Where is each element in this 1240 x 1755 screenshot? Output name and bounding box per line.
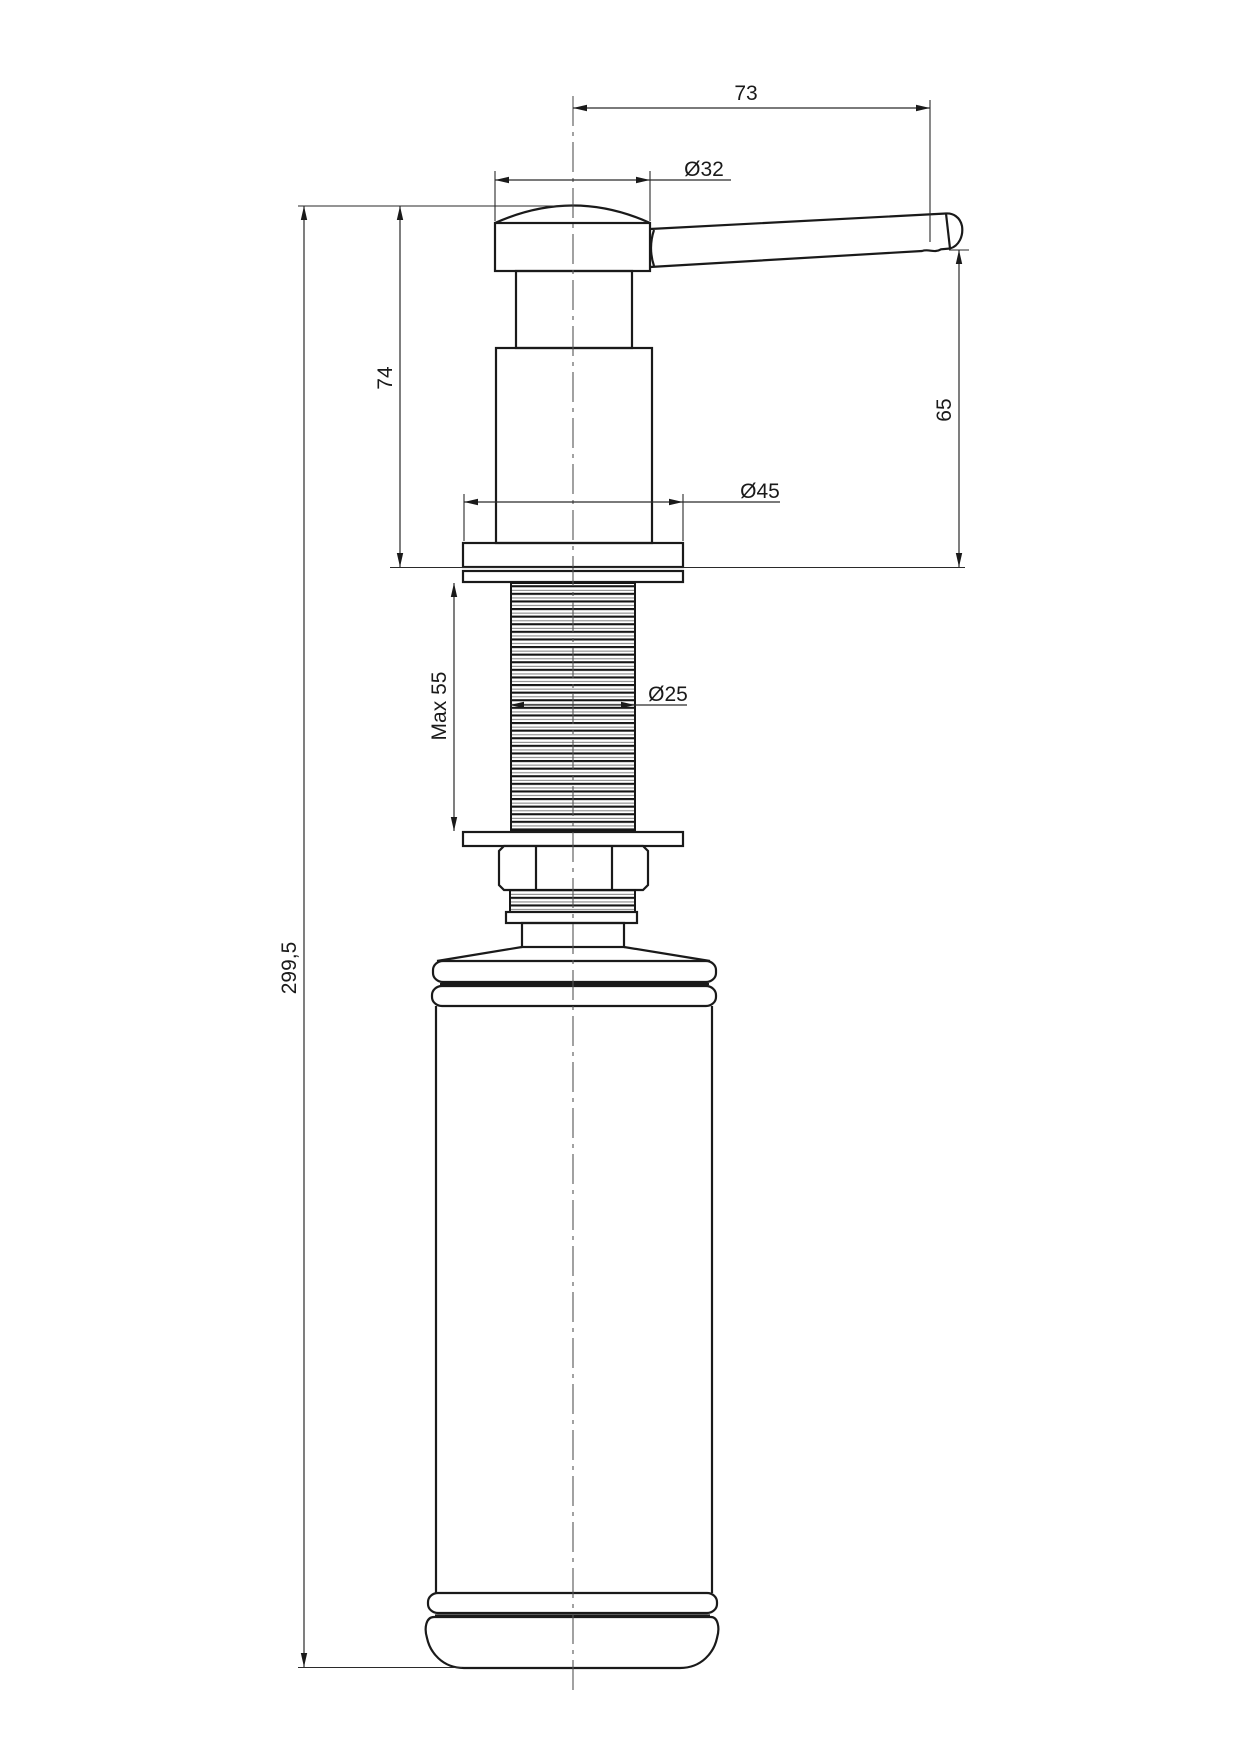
bottle-shoulder-left xyxy=(437,947,522,961)
dimension-max-counter-thickness: Max 55 xyxy=(428,583,457,831)
dim-label-max-counter-thickness: Max 55 xyxy=(428,672,451,741)
bottle-shoulder-right xyxy=(624,947,710,961)
bottle-top-bead-1 xyxy=(433,961,716,982)
dim-label-spout-height: 65 xyxy=(933,398,956,421)
arrowhead xyxy=(636,177,650,183)
bottle-neck-collar xyxy=(506,912,637,923)
bottle-bottom-cup xyxy=(426,1617,719,1668)
dimension-flange-diameter: Ø45 xyxy=(464,480,780,541)
dimension-total-height: 299,5 xyxy=(278,206,575,1668)
arrowhead xyxy=(916,105,930,111)
bottle xyxy=(426,912,719,1668)
pump-lever xyxy=(650,213,962,267)
bottle-top-bead-2 xyxy=(432,986,716,1006)
dim-label-height-above-counter: 74 xyxy=(374,366,397,390)
dim-label-lever-reach: 73 xyxy=(734,82,757,105)
arrowhead xyxy=(451,583,457,597)
arrowhead xyxy=(451,817,457,831)
arrowhead xyxy=(464,499,478,505)
arrowhead xyxy=(573,105,587,111)
dim-label-total-height: 299,5 xyxy=(278,942,301,995)
lever-tip-edge xyxy=(946,214,950,249)
technical-drawing-canvas: 73 Ø32 74 65 Ø45 Max xyxy=(0,0,1240,1755)
dimension-height-above-counter: 74 xyxy=(374,206,403,567)
dim-label-flange-diameter: Ø45 xyxy=(740,480,780,503)
arrowhead xyxy=(669,499,683,505)
arrowhead xyxy=(397,206,403,220)
lever-outline xyxy=(650,213,962,267)
arrowhead xyxy=(301,1653,307,1667)
arrowhead xyxy=(495,177,509,183)
arrowhead xyxy=(301,206,307,220)
pump-body xyxy=(496,348,652,543)
arrowhead xyxy=(956,553,962,567)
dim-label-thread-diameter: Ø25 xyxy=(648,683,688,706)
arrowhead xyxy=(397,553,403,567)
dim-label-head-diameter: Ø32 xyxy=(684,158,724,181)
drawing-page: 73 Ø32 74 65 Ø45 Max xyxy=(0,0,1240,1755)
arrowhead xyxy=(956,250,962,264)
dimension-spout-height: 65 xyxy=(933,250,969,567)
pump-neck xyxy=(516,271,632,348)
lever-root-fillet xyxy=(651,230,654,266)
